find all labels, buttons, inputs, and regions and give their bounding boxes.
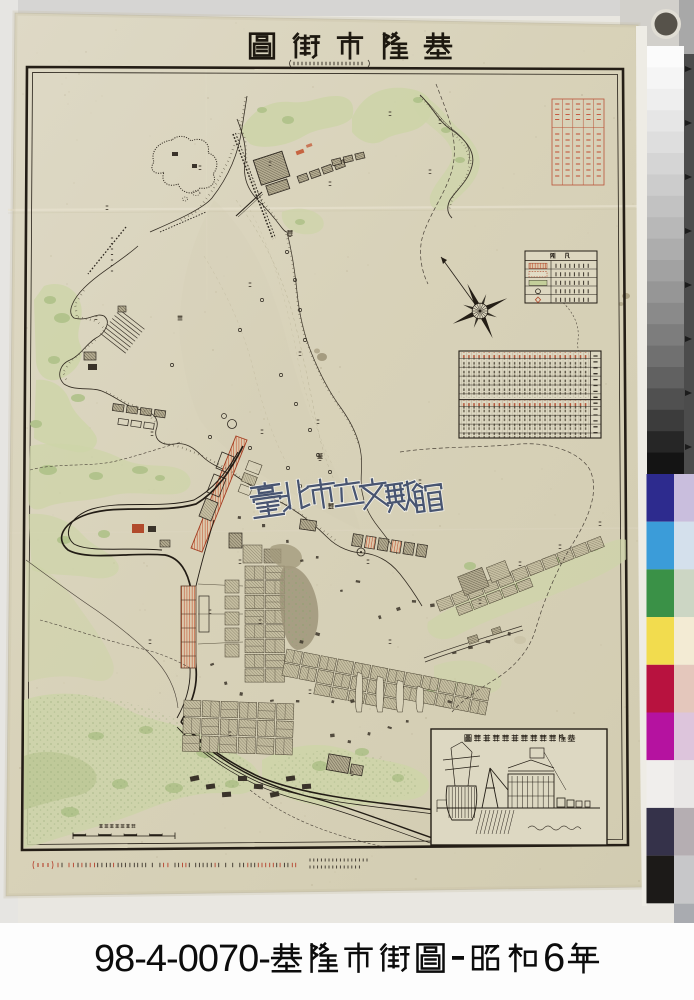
svg-text:98-4-0070-: 98-4-0070- — [94, 938, 270, 980]
svg-text:6: 6 — [543, 936, 565, 980]
